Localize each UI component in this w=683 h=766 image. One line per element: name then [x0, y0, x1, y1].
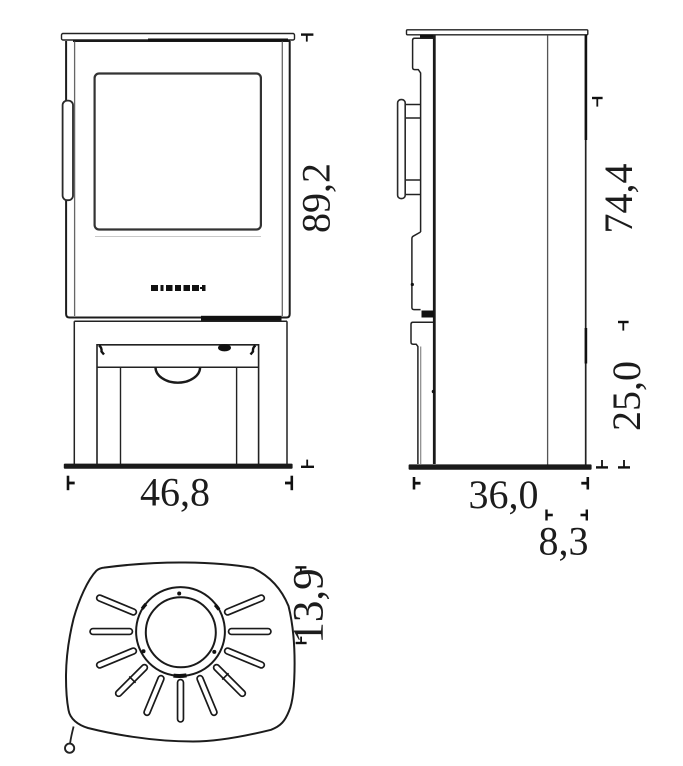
svg-text:89,2: 89,2	[294, 163, 339, 233]
svg-text:8,3: 8,3	[539, 519, 589, 564]
svg-text:25,0: 25,0	[604, 361, 649, 431]
svg-text:13,9: 13,9	[286, 568, 333, 643]
svg-text:74,4: 74,4	[596, 164, 641, 234]
svg-text:36,0: 36,0	[469, 472, 539, 517]
svg-text:46,8: 46,8	[140, 470, 210, 515]
